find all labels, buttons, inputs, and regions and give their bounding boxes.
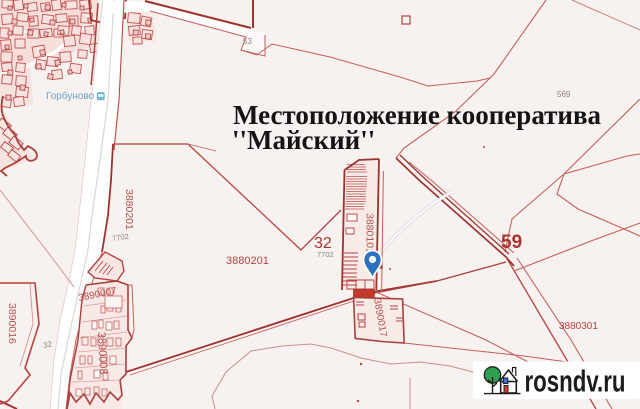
svg-text:32: 32: [314, 235, 332, 252]
svg-text:3880101: 3880101: [364, 213, 376, 254]
svg-text:3890008: 3890008: [95, 332, 109, 375]
svg-text:''Майский'': ''Майский'': [232, 125, 375, 155]
svg-text:rosndv.ru: rosndv.ru: [525, 364, 626, 398]
svg-text:59: 59: [501, 232, 522, 253]
svg-text:53: 53: [243, 37, 252, 46]
svg-text:3880301: 3880301: [559, 321, 598, 332]
svg-text:3880201: 3880201: [123, 189, 135, 230]
svg-text:3880201: 3880201: [226, 255, 269, 267]
svg-text:569: 569: [557, 90, 571, 99]
svg-text:Горбуново: Горбуново: [46, 90, 95, 102]
svg-text:3890016: 3890016: [6, 303, 18, 344]
